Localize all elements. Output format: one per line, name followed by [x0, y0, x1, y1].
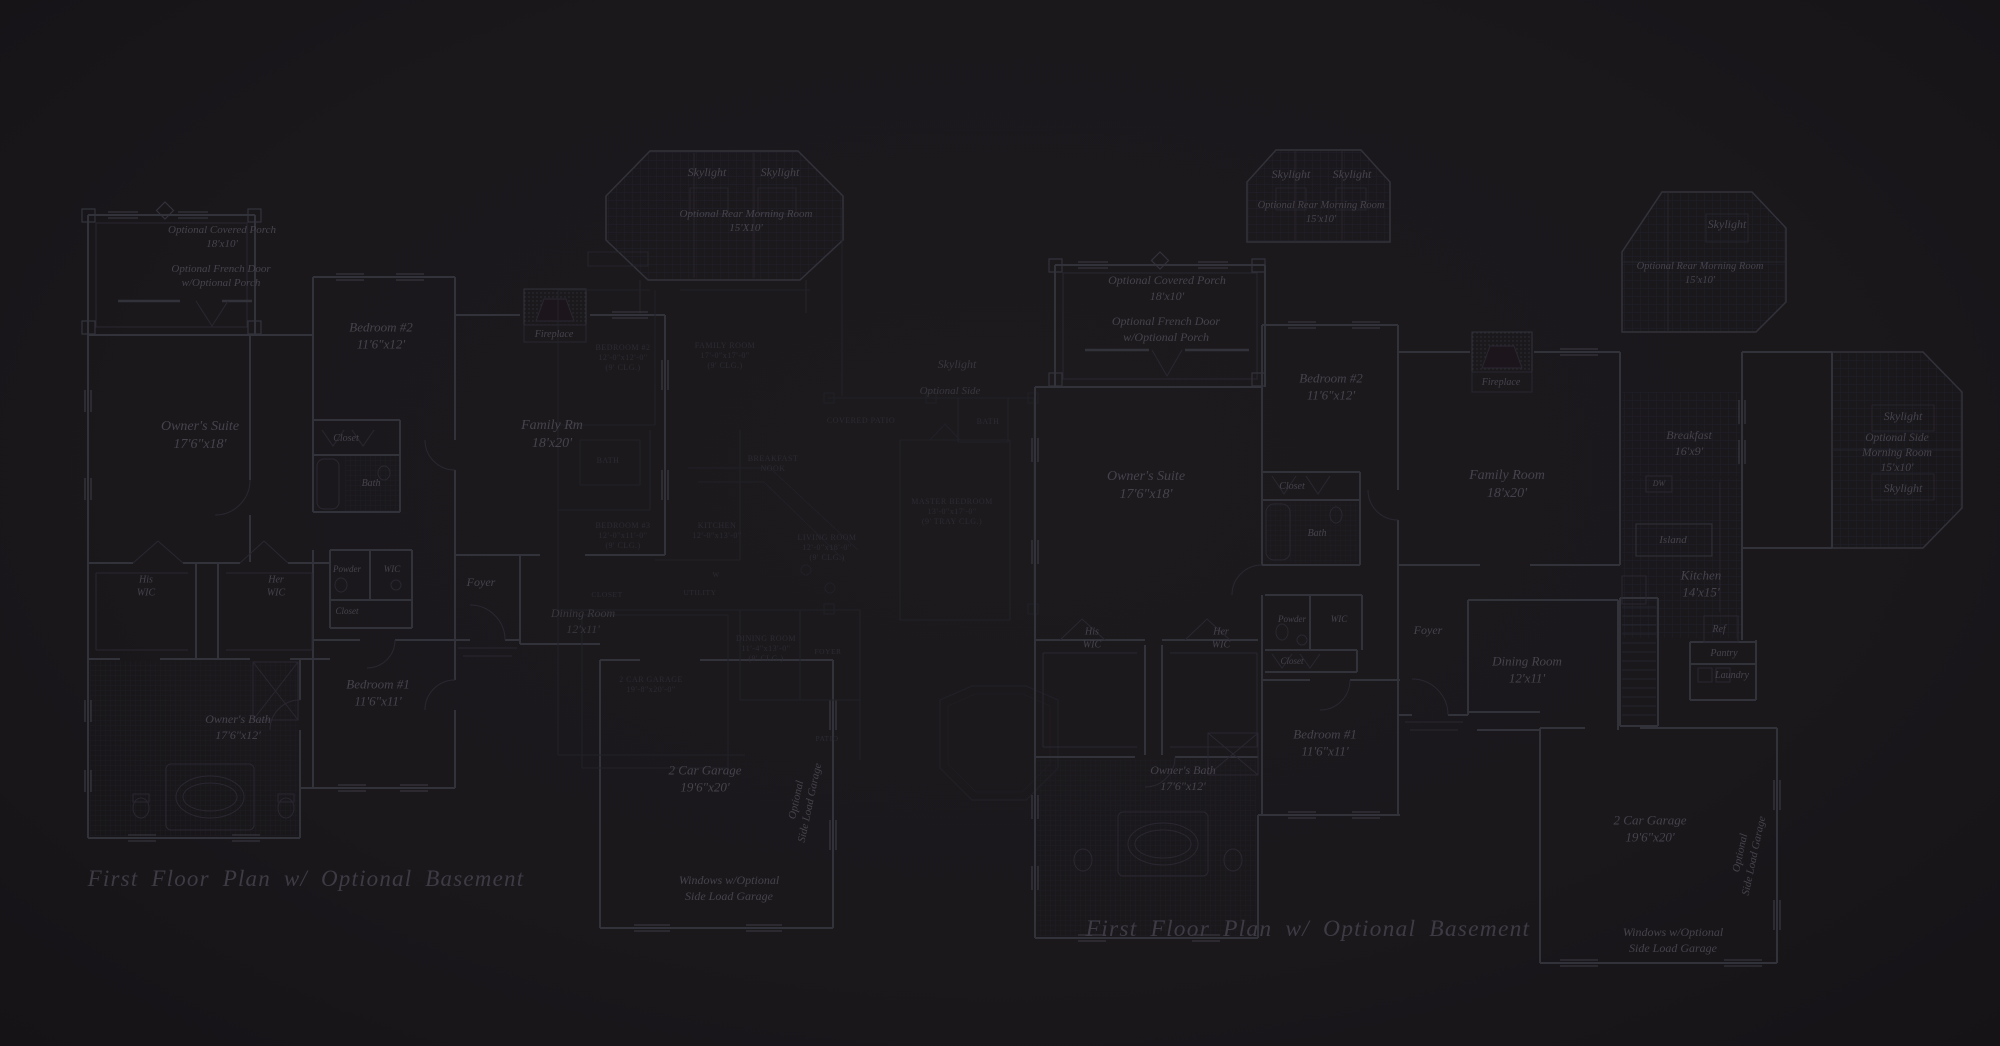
closet-rods-and-doors: [1043, 476, 1463, 747]
plan-middle-label-family-room-caps: FAMILY ROOM17'-0"x17'-0"(9' CLG.): [695, 341, 755, 370]
plan-middle-label-patio-caps: PATIO: [815, 734, 838, 743]
plan-right-label-fireplace: Fireplace: [1481, 377, 1521, 388]
plan-left-label-fireplace: Fireplace: [534, 329, 574, 340]
plan-middle-label-washer-caps: W: [712, 571, 719, 579]
plan-right-label-closet-1: Closet: [1279, 481, 1305, 492]
plan-left-label-skylight-1: Skylight: [688, 165, 727, 179]
plan-right-label-closet-2: Closet: [1280, 656, 1304, 666]
plan-left-label-foyer: Foyer: [466, 575, 496, 589]
plan-right-label-skylight-side-2: Skylight: [1884, 481, 1923, 495]
plan-left-label-bedroom-2: Bedroom #211'6"x12': [349, 320, 413, 352]
plan-middle-label-optional-side-mid: Optional Side: [920, 385, 981, 397]
plan-right-label-french-door: Optional French Doorw/Optional Porch: [1112, 314, 1221, 344]
plan-left-label-side-load-garage: OptionalSide Load Garage: [782, 759, 824, 843]
powder-toilet: [335, 578, 347, 592]
plan-middle-label-utility-caps: UTILITY: [683, 588, 716, 597]
plan-left-label-owners-suite: Owner's Suite17'6"x18': [161, 419, 239, 452]
plan-left-label-windows-side-load: Windows w/OptionalSide Load Garage: [679, 873, 780, 903]
plan-right-label-side-load-garage: OptionalSide Load Garage: [1726, 812, 1768, 896]
plan-left-label-dining: Dining Room12'x11': [550, 606, 616, 636]
counter-stool: [825, 583, 835, 593]
bath2-tub: [317, 459, 339, 509]
kitchen-tile-floor: [1622, 478, 1742, 638]
plan-middle-label-covered-patio-caps: COVERED PATIO: [827, 416, 895, 425]
french-door-swing: [196, 301, 228, 326]
powder-sink: [391, 580, 401, 590]
plan-right-label-wic: WIC: [1331, 614, 1348, 624]
plan-left-label-closet-1: Closet: [333, 433, 359, 444]
plan-right-label-bath: Bath: [1308, 528, 1327, 539]
plan-left-label-covered-porch: Optional Covered Porch18'x10': [168, 224, 276, 250]
plan-middle-label-bath-caps-2: BATH: [977, 417, 1000, 426]
plan-right-label-island: Island: [1658, 534, 1687, 546]
plan-right-label-windows-side-load: Windows w/OptionalSide Load Garage: [1623, 925, 1724, 955]
floorplan-drawing: First Floor Plan w/ Optional Basement Fi…: [0, 0, 2000, 1046]
plan-right-label-powder: Powder: [1277, 614, 1306, 624]
plan-left-label-french-door: Optional French Doorw/Optional Porch: [171, 263, 271, 289]
plan-middle-label-kitchen-caps: KITCHEN12'-0"x13'-0": [692, 521, 741, 540]
plan-left-label-bedroom-1: Bedroom #111'6"x11': [346, 677, 409, 709]
plan-title-left: First Floor Plan w/ Optional Basement: [87, 866, 525, 891]
plan-title-right: First Floor Plan w/ Optional Basement: [1085, 916, 1531, 942]
plan-right-label-owners-suite: Owner's Suite17'6"x18': [1107, 469, 1185, 502]
plan-left-label-his-wic: HisWIC: [137, 575, 156, 599]
plan-right-label-covered-porch: Optional Covered Porch18'x10': [1108, 273, 1226, 303]
plan-middle-label-bedroom3-caps: BEDROOM #312'-0"x11'-0"(9' CLG.): [595, 521, 650, 550]
plan-right-label-bedroom-2: Bedroom #211'6"x12': [1299, 371, 1363, 403]
plan-middle-label-closet-caps: CLOSET: [591, 590, 622, 599]
powder-toilet: [1276, 624, 1288, 640]
plan-left-label-skylight-2: Skylight: [761, 165, 800, 179]
plan-left-label-her-wic: HerWIC: [267, 575, 286, 599]
plan-right-label-garage: 2 Car Garage19'6"x20': [1614, 813, 1687, 845]
plan-left-label-family-rm: Family Rm18'x20': [520, 418, 583, 451]
closet-rods-and-doors: [96, 430, 517, 656]
plan-middle-label-bath-caps-1: BATH: [597, 456, 620, 465]
washer: [1698, 668, 1712, 682]
plan-right-label-skylight-2: Skylight: [1333, 167, 1372, 181]
plan-middle-label-breakfast-nook-caps: BREAKFASTNOOK: [748, 454, 799, 473]
plan-left-label-wic: WIC: [384, 564, 401, 574]
owners-bath-tile-floor: [90, 661, 298, 836]
plan-right-label-skylight-side-1: Skylight: [1884, 409, 1923, 423]
plan-right-label-laundry: Laundry: [1714, 670, 1749, 681]
plan-right-label-ref: Ref: [1711, 624, 1727, 635]
plan-right-label-family-room: Family Room18'x20': [1468, 468, 1545, 501]
plan-left-label-garage: 2 Car Garage19'6"x20': [669, 763, 742, 795]
plan-right-label-his-wic: HisWIC: [1083, 627, 1102, 651]
powder-sink: [1297, 635, 1307, 645]
plan-middle-label-skylight-mid: Skylight: [938, 357, 977, 371]
plan-middle-label-dining-room-caps: DINING ROOM11'-4"x13'-0"(9' CLG.): [736, 634, 796, 663]
plan-left-label-closet-2: Closet: [335, 606, 359, 616]
blueprint-canvas: First Floor Plan w/ Optional Basement Fi…: [0, 0, 2000, 1046]
rear-morning-room-bay-1: [1247, 150, 1390, 242]
plan-right-label-foyer: Foyer: [1413, 623, 1443, 637]
plan-middle-label-living-room-caps: LIVING ROOM12'-0"x18'-0"(9' CLG.): [797, 533, 856, 562]
french-door-swing: [1152, 350, 1182, 376]
plan-middle-label-garage-caps: 2 CAR GARAGE19'-8"x20'-0": [619, 675, 683, 694]
plan-middle-label-bedroom2-caps: BEDROOM #212'-0"x12'-0"(9' CLG.): [595, 343, 650, 372]
plan-left-label-bath: Bath: [362, 478, 381, 489]
plan-right-label-dw: DW: [1652, 479, 1667, 488]
plan-right-label-skylight-3: Skylight: [1708, 217, 1747, 231]
plan-right-label-bedroom-1: Bedroom #111'6"x11': [1293, 727, 1356, 759]
counter-stool: [801, 565, 811, 575]
plan-right-label-dining-room: Dining Room12'x11': [1491, 654, 1562, 686]
plan-right-label-skylight-1: Skylight: [1272, 167, 1311, 181]
plan-middle-label-foyer-caps: FOYER: [814, 647, 841, 656]
plan-middle-label-master-bedroom-caps: MASTER BEDROOM13'-0"x17'-0"(9' TRAY CLG.…: [911, 497, 992, 526]
plan-right-label-pantry: Pantry: [1709, 648, 1738, 659]
plan-left-label-powder: Powder: [332, 564, 361, 574]
owners-bath-tile-floor: [1037, 759, 1256, 936]
middle-plan-walls: [558, 208, 1034, 768]
